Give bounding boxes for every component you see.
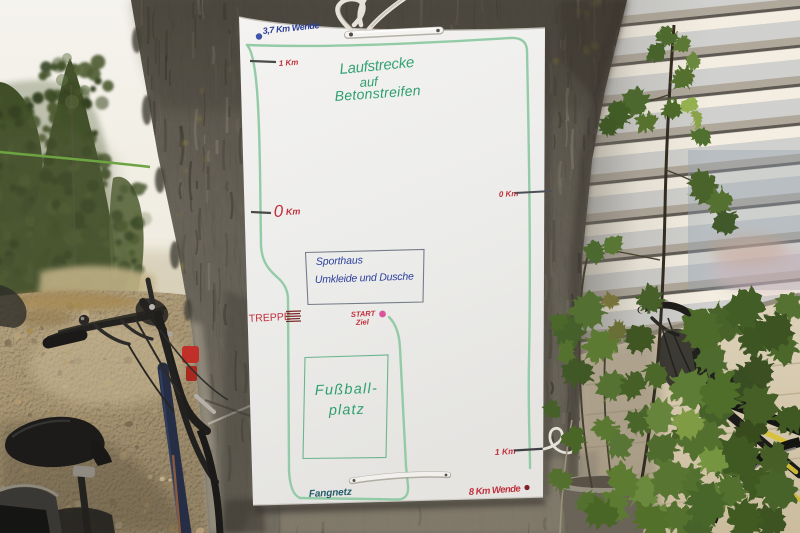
svg-text:Fangnetz: Fangnetz — [309, 487, 353, 500]
svg-text:0: 0 — [273, 201, 284, 220]
svg-text:Sporthaus: Sporthaus — [316, 254, 364, 268]
svg-text:TREPPE: TREPPE — [249, 311, 292, 325]
svg-text:platz: platz — [328, 402, 365, 419]
svg-text:Km: Km — [286, 206, 301, 217]
svg-text:1 Km: 1 Km — [279, 58, 299, 68]
svg-text:1 Km: 1 Km — [495, 446, 517, 457]
svg-text:Ziel: Ziel — [355, 317, 370, 327]
svg-text:0 Km: 0 Km — [499, 189, 519, 199]
